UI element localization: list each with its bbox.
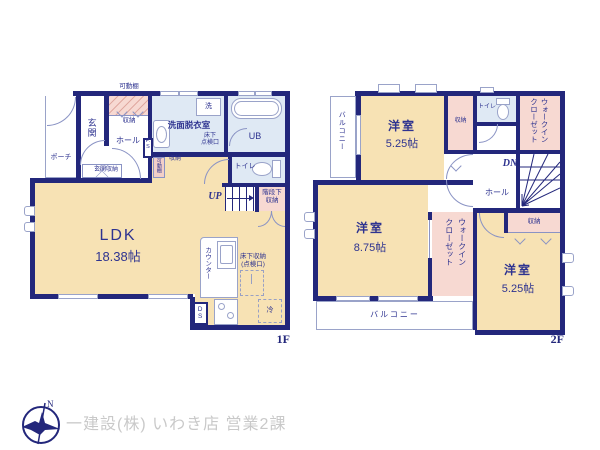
label-bath: UB [243,131,267,142]
window-tab [378,84,400,93]
label-room3: 洋室 [500,263,536,277]
door-arc [80,140,105,165]
window [255,91,272,96]
label-hall-2f: ホール [480,188,514,197]
window [179,91,198,96]
stairs-2f-treads [520,154,560,208]
underfloor-storage-box [240,270,264,296]
label-washroom: 洗面脱衣室 [158,120,220,130]
hatch-mark [251,274,252,284]
window [160,91,179,96]
window-tab [562,286,574,296]
floor-plan-page: 可動棚 ポーチ 玄関 玄関収納 収納 ホール P.S 洗 洗面脱衣室 床下 点検… [0,0,600,450]
label-entrance: 玄関 [86,118,97,138]
toilet-bowl-2f [497,104,509,120]
kitchen-sink-inner [220,245,233,264]
window [148,294,188,299]
floor-label-1f: 1F [264,332,290,346]
room2-floor [318,185,428,296]
label-hall-storage: 収納 [114,117,144,125]
label-stairs-up: UP [205,191,225,203]
company-watermark: 一建設(株) いわき店 営業2課 [66,410,366,434]
window-tab [480,87,494,93]
stove-burner [218,303,225,310]
window-tab [415,84,437,93]
window [238,91,255,96]
label-storage-small: 収納 [165,156,185,163]
label-ldk: LDK [88,227,148,246]
label-duct: DS [196,306,204,320]
label-washer: 洗 [196,103,221,111]
toilet-icon-1f [272,160,281,178]
label-storage-top: 収納 [448,118,473,125]
floor-label-2f: 2F [538,332,564,346]
stairs-arrow [227,198,249,199]
window-tab [304,229,315,239]
stove-burner [227,312,234,319]
compass-north-label: N [47,399,54,409]
window-tab [24,206,35,216]
window-tab [304,212,315,222]
door-arc [479,124,498,143]
label-underfloor-storage: 床下収納 (点検口) [237,253,269,268]
label-room1: 洋室 [384,119,420,133]
label-ldk-size: 18.38帖 [82,249,154,264]
label-balcony-bottom: バルコニー [360,310,430,319]
label-underfloor-hatch: 床下 点検口 [196,133,224,147]
door-arc [446,180,473,207]
label-wic-mid: ウォークイン クローゼット [442,218,468,294]
label-toilet-2f: トイレ [477,104,497,111]
window [336,296,370,301]
bathtub-icon-inner [234,101,279,116]
label-wic-top: ウォークイン クローゼット [528,98,549,150]
label-room2-size: 8.75帖 [348,242,392,255]
label-balcony-left: バルコニー [337,111,345,151]
compass-icon: N [14,396,68,448]
window [58,294,98,299]
label-stairs-down: DN [500,158,520,170]
stove [214,299,238,325]
label-fridge: 冷 [258,307,282,315]
stairs-2f [520,154,560,208]
label-shelf-top: 可動棚 [109,83,149,91]
label-room1-size: 5.25帖 [380,138,424,151]
window [378,296,418,301]
label-room3-size: 5.25帖 [496,283,540,296]
label-shelf-small: 可動棚 [155,158,161,173]
label-room2: 洋室 [352,221,388,235]
sliding-door-line [429,220,430,258]
window [356,115,361,155]
label-entrance-storage: 玄関収納 [90,167,122,174]
label-counter: カウンター [203,247,211,280]
label-under-stair-storage: 階段下 収納 [258,189,286,204]
window-tab [24,222,35,232]
stairs-arrowhead [249,195,254,201]
label-ps: P.S [144,139,152,150]
label-toilet-1f: トイレ [232,163,258,171]
label-storage-right: 収納 [508,218,560,226]
label-hall: ホール [110,136,146,145]
window-tab [562,253,574,263]
label-porch: ポーチ [46,154,76,162]
